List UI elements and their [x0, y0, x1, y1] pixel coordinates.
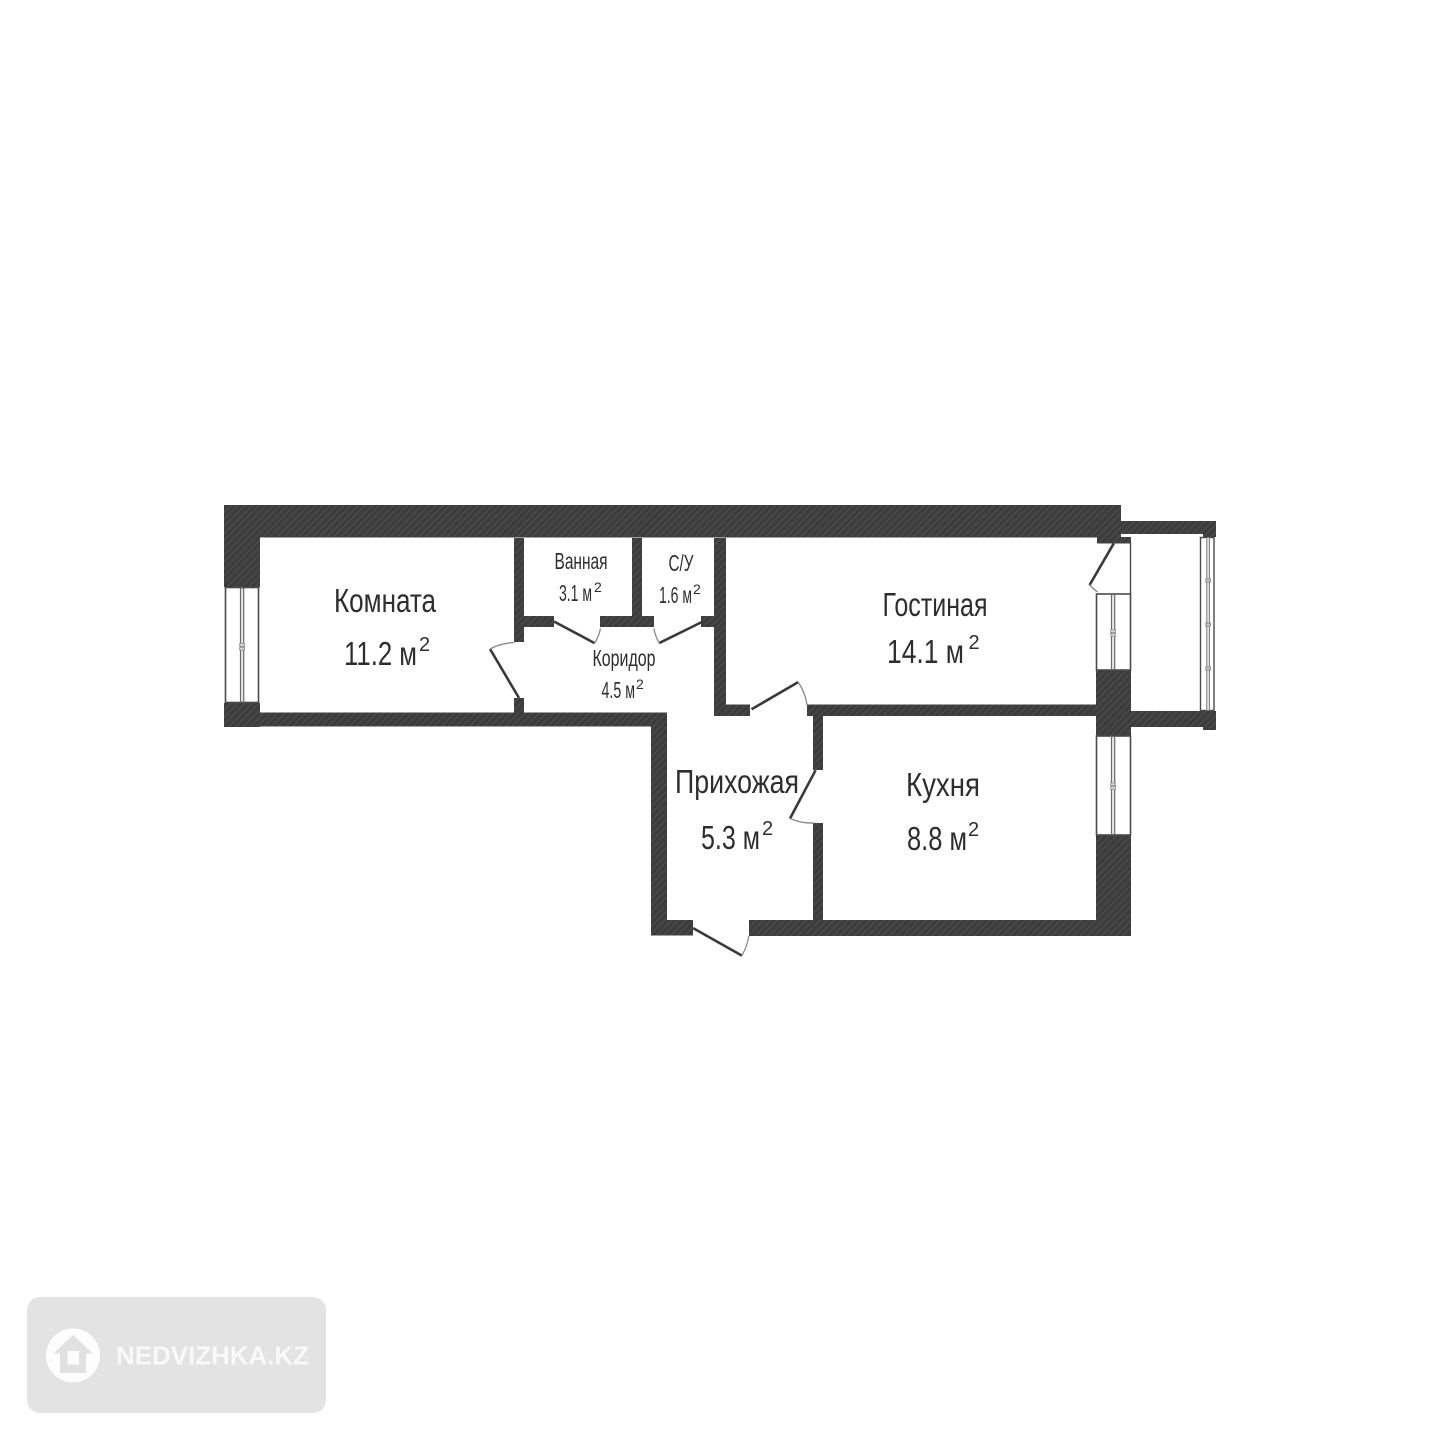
svg-text:2: 2 — [636, 676, 644, 692]
svg-text:14.1 м: 14.1 м — [887, 633, 964, 670]
svg-text:Коридор: Коридор — [593, 645, 656, 671]
svg-text:С/У: С/У — [669, 550, 694, 576]
svg-text:2: 2 — [969, 632, 980, 654]
svg-text:2: 2 — [968, 819, 979, 841]
svg-text:Комната: Комната — [334, 582, 437, 619]
svg-text:2: 2 — [419, 634, 430, 656]
svg-text:Прихожая: Прихожая — [675, 763, 799, 800]
svg-text:3.1 м: 3.1 м — [559, 580, 592, 606]
svg-text:Кухня: Кухня — [906, 766, 980, 803]
svg-text:Гостиная: Гостиная — [883, 586, 988, 623]
svg-text:4.5 м: 4.5 м — [602, 677, 636, 703]
svg-text:2: 2 — [693, 581, 701, 597]
svg-text:2: 2 — [762, 818, 773, 840]
svg-text:NEDVIZHKA.KZ: NEDVIZHKA.KZ — [116, 1340, 309, 1370]
svg-text:1.6 м: 1.6 м — [659, 582, 692, 608]
svg-text:Ванная: Ванная — [555, 548, 608, 574]
svg-text:5.3 м: 5.3 м — [701, 819, 760, 856]
svg-text:11.2 м: 11.2 м — [344, 635, 417, 672]
svg-text:8.8 м: 8.8 м — [907, 820, 967, 857]
svg-text:2: 2 — [594, 579, 602, 595]
